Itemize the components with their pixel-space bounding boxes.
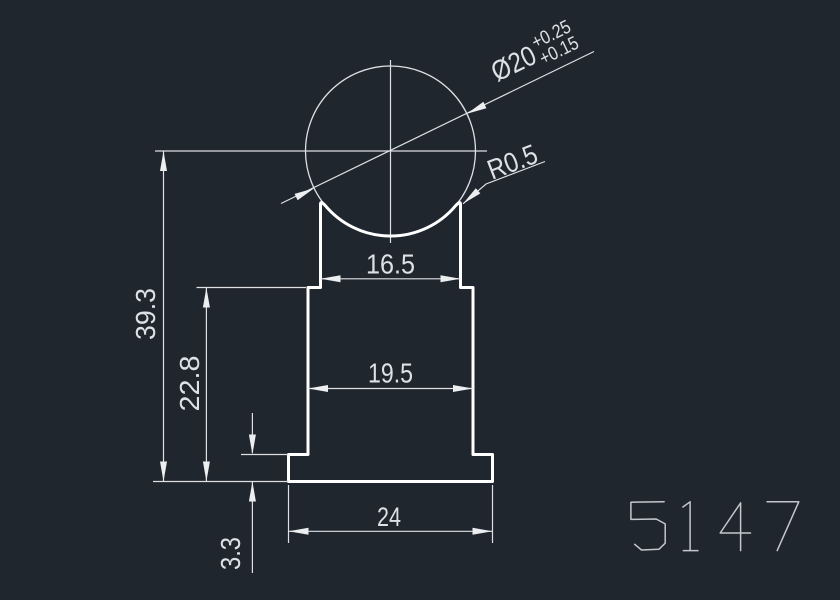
- svg-text:24: 24: [377, 502, 401, 532]
- svg-text:16.5: 16.5: [366, 249, 415, 280]
- svg-text:39.3: 39.3: [130, 288, 161, 340]
- svg-text:19.5: 19.5: [368, 358, 413, 389]
- svg-text:3.3: 3.3: [215, 537, 246, 570]
- svg-text:22.8: 22.8: [174, 356, 205, 412]
